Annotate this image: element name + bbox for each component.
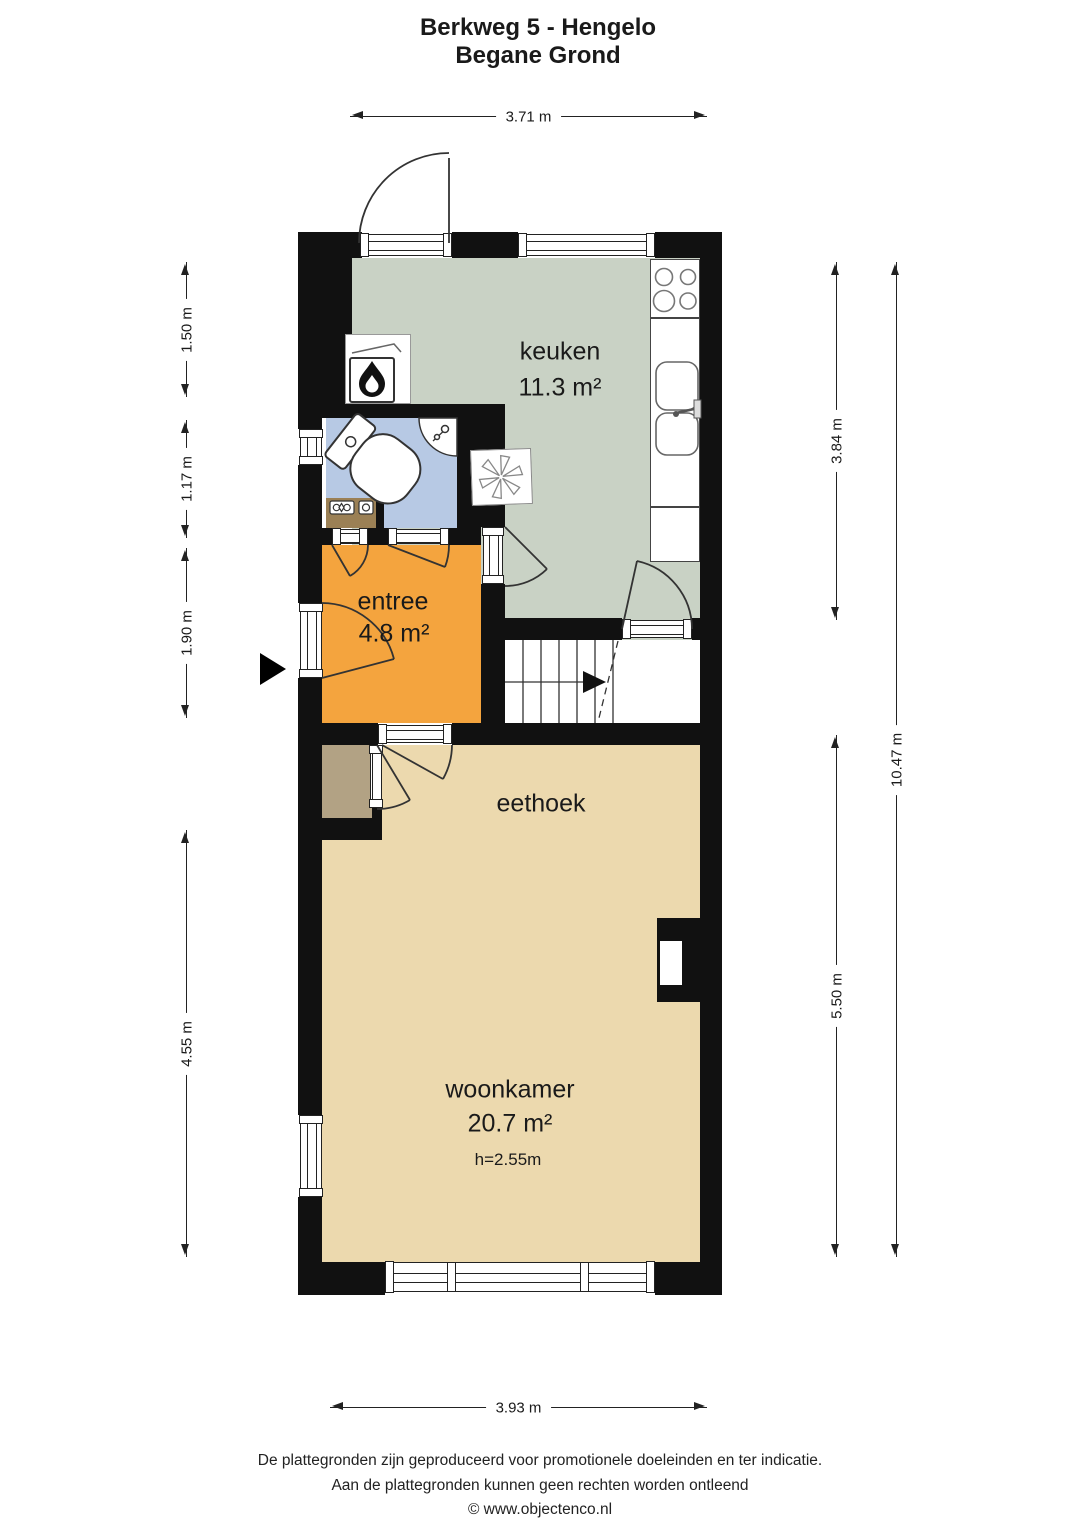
dimension-label: 3.71 m [496,109,562,126]
dimension-label: 1.50 m [179,299,196,361]
dimension-label: 1.17 m [179,448,196,510]
ceiling-height-label: h=2.55m [475,1150,542,1170]
entrance-arrow-icon [260,653,286,685]
wall-segment [449,528,481,545]
floorplan-page: Berkweg 5 - Hengelo Begane Grond [0,0,1080,1527]
window-jamb [580,1262,589,1292]
wall-segment [368,528,388,545]
dimension-label: 4.55 m [179,1013,196,1075]
footer-line2: Aan de plattegronden kunnen geen rechten… [331,1477,748,1495]
dimension-label: 1.90 m [179,602,196,664]
glazing [527,241,646,251]
wall-segment [322,336,345,404]
wall-segment [322,723,378,745]
glazing [631,625,683,635]
wall-segment [376,498,384,528]
kitchen-counter [650,318,700,507]
room-area-entree: 4.8 m² [359,620,430,649]
room-label-woonkamer: woonkamer [445,1076,574,1105]
footer-line3: © www.objectenco.nl [468,1501,612,1519]
dimension-right-kitchen: 3.84 m [836,262,837,620]
room-bathroom-floor [384,498,457,528]
room-bathroom-floor [326,418,457,498]
wall-segment [298,232,322,429]
rear-door-opening [360,234,452,256]
room-label-keuken: keuken [520,338,601,367]
dimension-label: 3.84 m [829,410,846,472]
dimension-label: 5.50 m [829,965,846,1027]
entree-kitchen-door-opening [483,527,503,584]
dimension-right-total: 10.47 m [896,262,897,1257]
kitchen-window [518,234,655,256]
stove-unit [650,259,700,318]
glazing [387,730,443,740]
storage-closet-floor [322,745,372,818]
woonkamer-side-window [300,1115,322,1197]
wall-segment [655,1262,722,1295]
wall-segment [452,723,722,745]
wall-segment [298,465,322,603]
stairs-area [505,640,700,723]
room-label-eethoek: eethoek [497,790,586,819]
dimension-right-living: 5.50 m [836,735,837,1257]
dimension-left-2: 1.17 m [186,420,187,538]
meter-closet-floor [326,498,378,528]
kitchen-landing-door-opening [622,620,692,638]
front-door-opening [300,603,322,678]
wall-segment [298,678,322,1115]
page-title-line1: Berkweg 5 - Hengelo [420,14,656,42]
ventilation-unit [470,448,533,506]
wall-segment [322,528,332,545]
wall-segment [700,232,722,1295]
wall-segment [452,232,518,258]
room-area-keuken: 11.3 m² [519,374,602,403]
window-jamb [447,1262,456,1292]
wall-segment [322,258,352,336]
dimension-top-width: 3.71 m [350,116,707,117]
storage-closet-door-opening [370,745,382,808]
glazing [307,1124,317,1188]
bathroom-door-opening [388,529,449,544]
glazing [397,533,440,543]
glazing [341,533,359,543]
wall-segment [505,618,622,640]
woonkamer-front-window [385,1262,655,1292]
dimension-left-3: 1.90 m [186,548,187,718]
footer-line1: De plattegronden zijn geproduceerd voor … [258,1452,822,1470]
chimney-niche [660,941,682,985]
glazing [369,241,443,251]
wall-segment [310,818,382,840]
dimension-label: 10.47 m [889,724,906,794]
page-title-line2: Begane Grond [455,42,620,70]
room-label-entree: entree [358,588,429,617]
glazing [394,1273,646,1283]
dimension-left-1: 1.50 m [186,262,187,397]
dimension-bottom-width: 3.93 m [330,1407,707,1408]
glazing [307,438,317,456]
room-area-woonkamer: 20.7 m² [468,1110,553,1139]
bathroom-window [300,429,322,465]
dimension-left-4: 4.55 m [186,830,187,1257]
boiler-unit [349,357,395,403]
dimension-label: 3.93 m [486,1400,552,1417]
eethoek-door-opening [378,725,452,743]
glazing [307,612,317,669]
kitchen-cabinet [650,507,700,562]
wall-segment [692,618,722,640]
meter-closet-door-opening [332,529,368,544]
wall-segment [481,612,505,723]
glazing [489,536,499,575]
glazing [372,754,382,799]
wall-segment [298,1262,385,1295]
rear-door-swing [359,153,449,243]
